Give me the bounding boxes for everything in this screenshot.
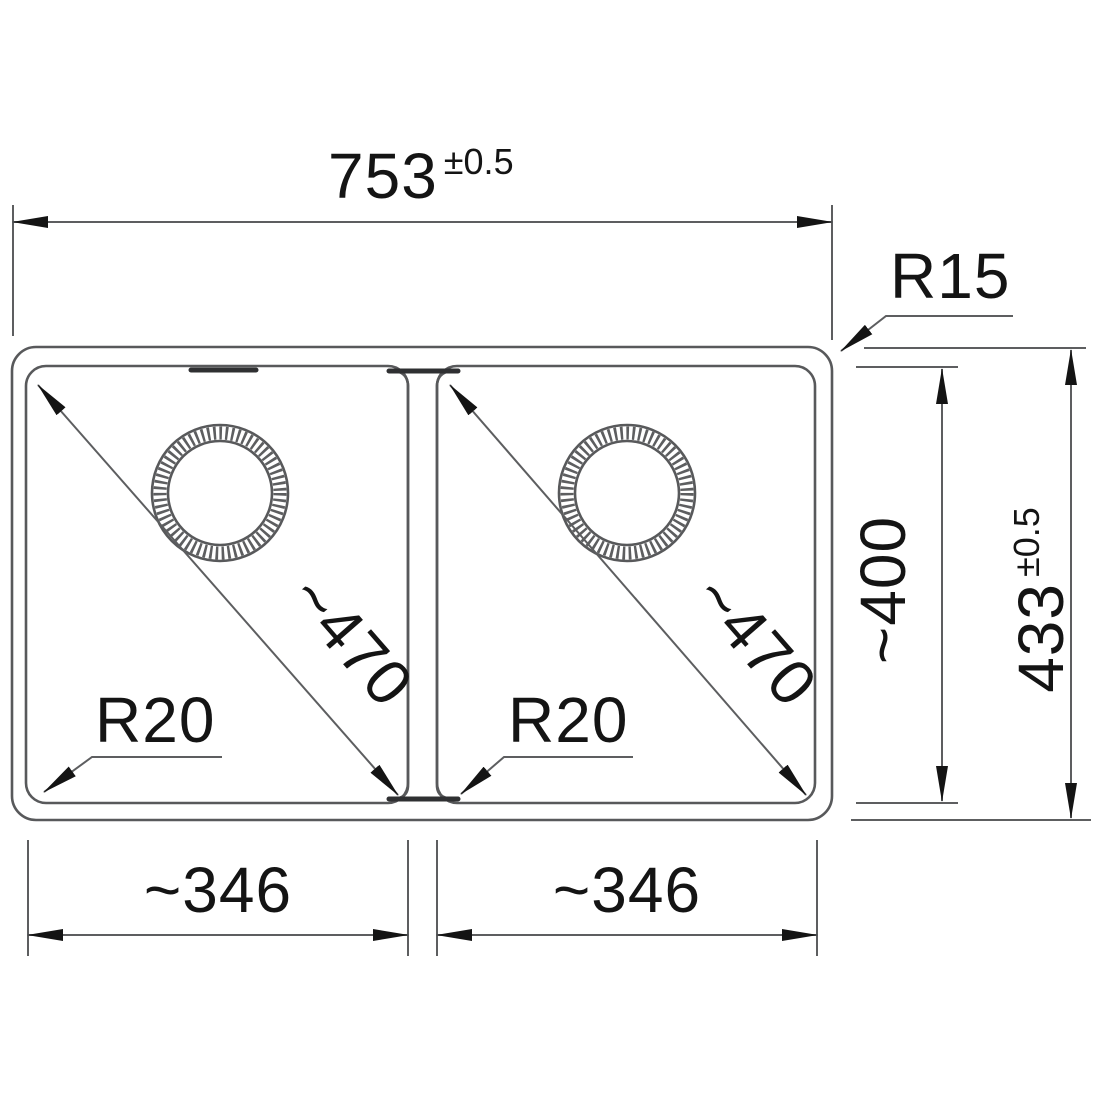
right-drain-inner-circle bbox=[575, 441, 679, 545]
left-drain-inner-circle bbox=[168, 441, 272, 545]
dim-r15-label: R15 bbox=[890, 240, 1010, 312]
dim-overall-width-label: 753±0.5 bbox=[328, 140, 514, 212]
leader-line bbox=[44, 757, 222, 792]
right-drain bbox=[559, 425, 695, 561]
dim-right-bowl-radius: R20 bbox=[461, 684, 633, 794]
dim-left-bowl-width: ~346 bbox=[28, 840, 408, 956]
dim-inner-height: ~400 bbox=[847, 367, 958, 803]
dim-left-bowl-radius: R20 bbox=[44, 684, 222, 792]
leader-line bbox=[841, 316, 1013, 351]
right-drain-outer-circle bbox=[559, 425, 695, 561]
left-drain bbox=[152, 425, 288, 561]
dim-right-diagonal-label: ~470 bbox=[680, 561, 832, 720]
dim-r20-right-label: R20 bbox=[508, 684, 628, 756]
drawing-canvas: 753±0.5 R15 ~470 ~470 R20 R20 ~400 433±0… bbox=[0, 0, 1100, 1100]
dim-left-diagonal-label: ~470 bbox=[276, 561, 428, 720]
center-divider bbox=[389, 371, 458, 799]
dim-inner-height-label: ~400 bbox=[847, 516, 919, 664]
dim-overall-height-label: 433±0.5 bbox=[1005, 507, 1077, 693]
leader-line bbox=[461, 757, 633, 794]
dim-overall-width: 753±0.5 bbox=[13, 140, 832, 340]
dim-right-bowl-width: ~346 bbox=[437, 840, 817, 956]
left-drain-knurl-ring bbox=[160, 433, 280, 553]
sink-technical-drawing: 753±0.5 R15 ~470 ~470 R20 R20 ~400 433±0… bbox=[0, 0, 1100, 1100]
dim-outer-corner-radius: R15 bbox=[841, 240, 1013, 351]
left-drain-outer-circle bbox=[152, 425, 288, 561]
right-drain-knurl-ring bbox=[567, 433, 687, 553]
dim-right-bowl-width-label: ~346 bbox=[553, 854, 701, 926]
dim-left-bowl-width-label: ~346 bbox=[144, 854, 292, 926]
dim-r20-left-label: R20 bbox=[95, 684, 215, 756]
